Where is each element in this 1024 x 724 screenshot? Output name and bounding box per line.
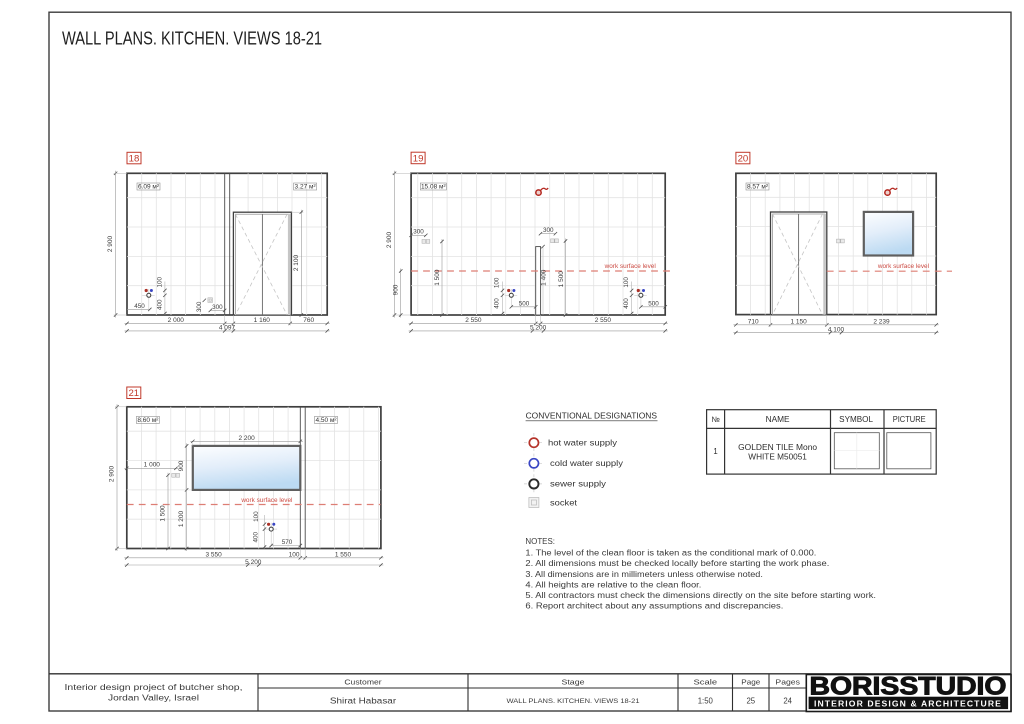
svg-text:2 550: 2 550 <box>595 317 612 324</box>
svg-text:INTERIOR DESIGN & ARCHITECTURE: INTERIOR DESIGN & ARCHITECTURE <box>814 699 1002 708</box>
svg-text:2 900: 2 900 <box>107 235 114 252</box>
svg-text:Scale: Scale <box>694 678 718 687</box>
svg-text:100: 100 <box>156 277 163 288</box>
svg-text:100: 100 <box>623 277 630 288</box>
svg-text:400: 400 <box>623 298 630 309</box>
svg-text:cold water supply: cold water supply <box>550 458 624 468</box>
svg-text:work surface level: work surface level <box>240 497 292 504</box>
svg-text:Jordan Valley, Israel: Jordan Valley, Israel <box>108 693 199 702</box>
svg-text:100: 100 <box>494 277 501 288</box>
svg-text:socket: socket <box>550 497 578 507</box>
svg-text:300: 300 <box>212 304 223 311</box>
svg-text:WHITE M50051: WHITE M50051 <box>748 452 807 461</box>
svg-text:21: 21 <box>128 388 139 399</box>
svg-text:2 900: 2 900 <box>108 465 115 482</box>
svg-text:570: 570 <box>282 539 293 546</box>
svg-text:NOTES:: NOTES: <box>525 537 555 546</box>
svg-text:8.57 м²: 8.57 м² <box>747 184 769 191</box>
svg-text:5 200: 5 200 <box>245 559 262 566</box>
svg-text:400: 400 <box>252 532 259 543</box>
svg-text:Page: Page <box>741 678 760 687</box>
svg-text:400: 400 <box>156 299 163 310</box>
svg-text:300: 300 <box>413 228 424 235</box>
svg-text:710: 710 <box>748 319 759 326</box>
svg-text:8.60 м²: 8.60 м² <box>137 417 159 424</box>
svg-text:5. All contractors must check: 5. All contractors must check the dimens… <box>525 591 876 600</box>
svg-text:1:50: 1:50 <box>698 697 714 706</box>
svg-text:4 097: 4 097 <box>219 325 236 332</box>
svg-text:19: 19 <box>413 153 424 164</box>
svg-text:1 500: 1 500 <box>159 505 166 522</box>
svg-text:Stage: Stage <box>562 678 585 687</box>
svg-text:900: 900 <box>178 460 185 471</box>
svg-text:Customer: Customer <box>344 678 382 687</box>
svg-text:1 000: 1 000 <box>144 462 161 469</box>
svg-text:3. All dimensions are in milli: 3. All dimensions are in millimeters unl… <box>525 570 763 579</box>
svg-text:Pages: Pages <box>775 678 800 687</box>
svg-text:25: 25 <box>746 697 755 706</box>
svg-text:GOLDEN TILE Mono: GOLDEN TILE Mono <box>738 443 818 452</box>
svg-text:Interior design project of but: Interior design project of butcher shop, <box>65 683 243 692</box>
svg-text:work surface level: work surface level <box>604 263 656 270</box>
svg-text:3 550: 3 550 <box>205 552 222 559</box>
svg-text:500: 500 <box>648 300 659 307</box>
svg-text:400: 400 <box>494 298 501 309</box>
svg-text:18: 18 <box>129 154 140 165</box>
svg-text:2 000: 2 000 <box>168 317 185 324</box>
svg-text:2 900: 2 900 <box>386 231 393 248</box>
svg-text:4.50 м²: 4.50 м² <box>315 417 337 424</box>
svg-text:24: 24 <box>783 697 792 706</box>
svg-text:2. All dimensions must be chec: 2. All dimensions must be checked locall… <box>525 559 829 568</box>
svg-text:2 550: 2 550 <box>465 317 482 324</box>
svg-text:№: № <box>711 415 719 424</box>
svg-text:sewer supply: sewer supply <box>550 479 607 489</box>
svg-text:760: 760 <box>303 317 314 324</box>
svg-text:15.08 м²: 15.08 м² <box>421 184 447 191</box>
svg-text:WALL PLANS. KITCHEN. VIEWS 18-: WALL PLANS. KITCHEN. VIEWS 18-21 <box>507 698 640 705</box>
svg-text:BORISSTUDIO: BORISSTUDIO <box>810 673 1007 701</box>
svg-text:4. All heights are relative to: 4. All heights are relative to the clean… <box>525 580 701 589</box>
svg-text:WALL PLANS. KITCHEN. VIEWS 18-: WALL PLANS. KITCHEN. VIEWS 18-21 <box>62 28 322 49</box>
svg-text:PICTURE: PICTURE <box>893 415 926 424</box>
svg-text:NAME: NAME <box>766 415 790 424</box>
svg-text:1 150: 1 150 <box>790 319 807 326</box>
svg-text:300: 300 <box>543 227 554 234</box>
svg-text:2 100: 2 100 <box>293 254 300 271</box>
svg-text:SYMBOL: SYMBOL <box>839 415 873 424</box>
svg-text:3.27 м²: 3.27 м² <box>295 184 317 191</box>
svg-text:900: 900 <box>393 284 400 295</box>
svg-text:hot water supply: hot water supply <box>548 437 618 447</box>
svg-text:100: 100 <box>289 552 300 559</box>
svg-text:1 550: 1 550 <box>335 552 352 559</box>
svg-text:1 160: 1 160 <box>254 317 271 324</box>
svg-text:20: 20 <box>738 154 749 165</box>
svg-text:4 100: 4 100 <box>828 326 845 333</box>
svg-text:6. Report architect about any: 6. Report architect about any assumption… <box>525 602 783 611</box>
svg-text:300: 300 <box>196 301 203 312</box>
svg-text:500: 500 <box>519 300 530 307</box>
svg-text:work surface level: work surface level <box>877 263 929 270</box>
svg-text:450: 450 <box>134 303 145 310</box>
svg-text:CONVENTIONAL DESIGNATIONS: CONVENTIONAL DESIGNATIONS <box>526 411 658 420</box>
svg-text:1: 1 <box>713 447 717 456</box>
svg-text:1 200: 1 200 <box>178 510 185 527</box>
svg-text:1 500: 1 500 <box>558 271 565 288</box>
svg-text:Shirat Habasar: Shirat Habasar <box>330 697 397 706</box>
svg-text:1 500: 1 500 <box>434 269 441 286</box>
svg-text:2 200: 2 200 <box>238 435 255 442</box>
svg-text:5 200: 5 200 <box>530 325 547 332</box>
svg-text:100: 100 <box>253 511 260 522</box>
svg-text:1 400: 1 400 <box>541 269 548 286</box>
svg-text:1. The level of the clean floo: 1. The level of the clean floor is taken… <box>525 549 816 558</box>
svg-text:6.09 м²: 6.09 м² <box>138 184 160 191</box>
svg-text:2 239: 2 239 <box>873 319 890 326</box>
